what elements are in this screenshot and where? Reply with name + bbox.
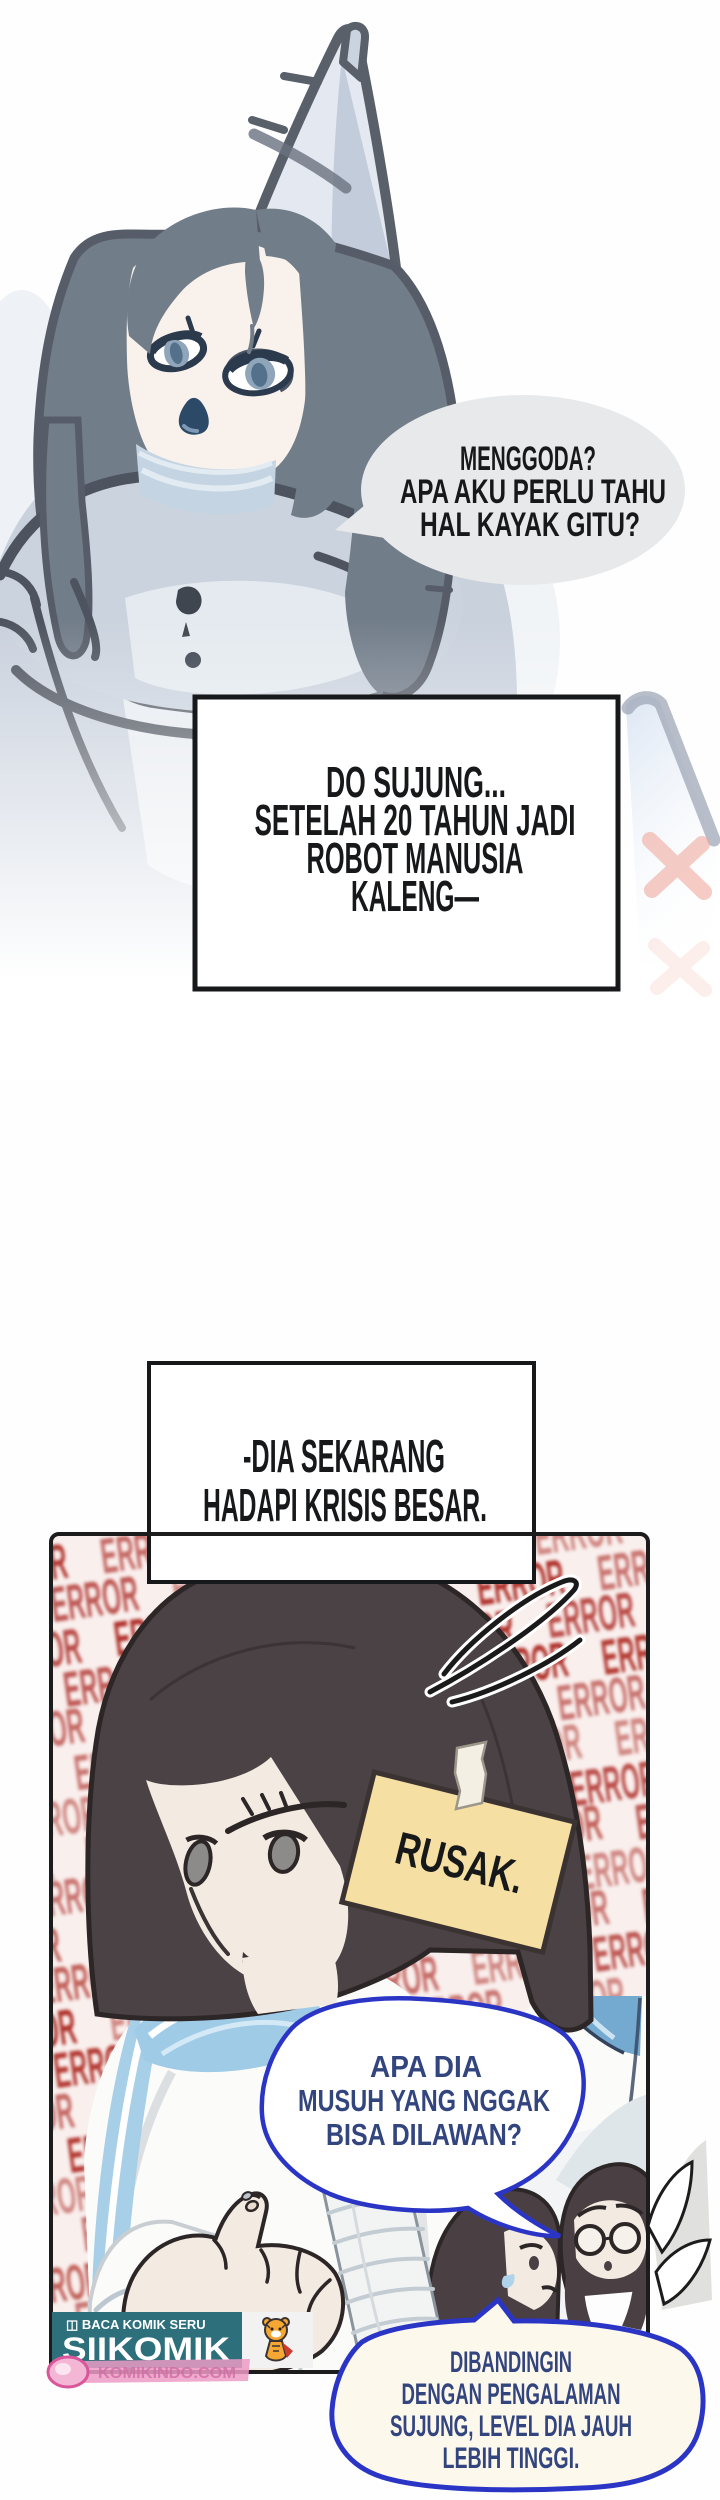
svg-text:HADAPI KRISIS BESAR.: HADAPI KRISIS BESAR. [203,1479,487,1531]
svg-text:SUJUNG, LEVEL DIA JAUH: SUJUNG, LEVEL DIA JAUH [390,2410,632,2443]
svg-text:LEBIH TINGGI.: LEBIH TINGGI. [443,2442,580,2475]
svg-text:-DIA SEKARANG: -DIA SEKARANG [243,1430,445,1482]
svg-text:DIBANDINGIN: DIBANDINGIN [450,2346,572,2379]
svg-text:DENGAN PENGALAMAN: DENGAN PENGALAMAN [402,2378,621,2411]
svg-text:KALENG—: KALENG— [351,872,479,921]
svg-text:APA DIA: APA DIA [370,2049,482,2084]
svg-text:KOMIKINDO.COM: KOMIKINDO.COM [98,2365,236,2382]
svg-text:HAL KAYAK GITU?: HAL KAYAK GITU? [420,506,640,544]
svg-text:BISA DILAWAN?: BISA DILAWAN? [326,2117,522,2152]
svg-text:◫ BACA KOMIK SERU: ◫ BACA KOMIK SERU [66,2317,206,2332]
svg-text:MUSUH YANG NGGAK: MUSUH YANG NGGAK [298,2083,550,2118]
